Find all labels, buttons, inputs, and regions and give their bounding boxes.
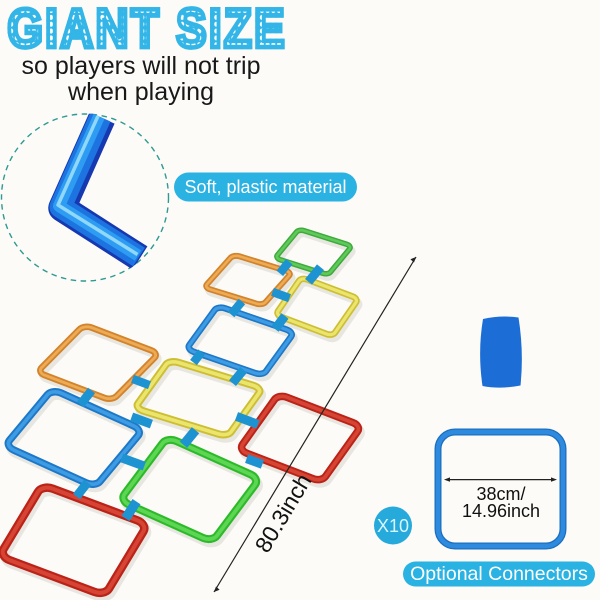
svg-text:X10: X10 [377,516,409,536]
svg-text:14.96inch: 14.96inch [462,501,540,521]
svg-text:Optional Connectors: Optional Connectors [410,563,588,585]
svg-text:Soft, plastic material: Soft, plastic material [184,177,346,197]
